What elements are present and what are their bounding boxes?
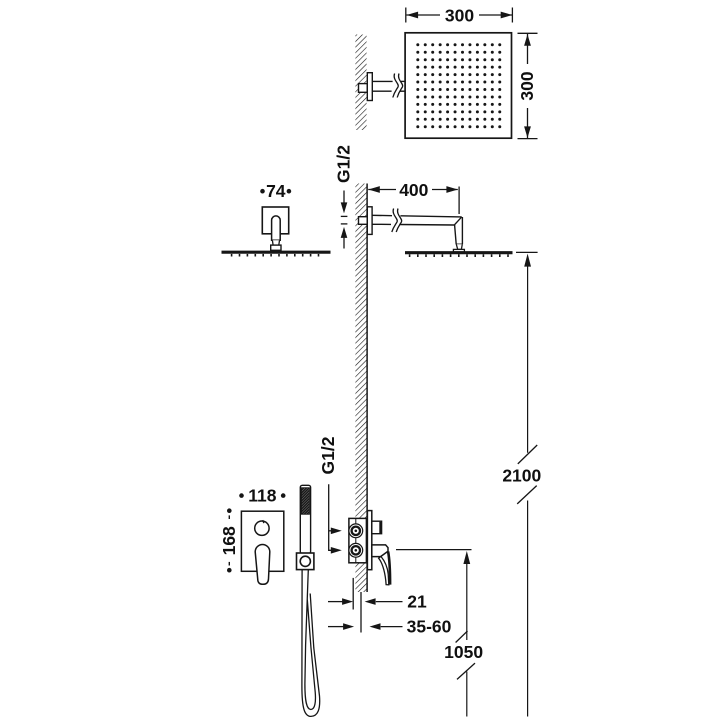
svg-text:74: 74	[266, 181, 286, 201]
svg-text:300: 300	[445, 6, 474, 26]
svg-text:G1/2: G1/2	[318, 436, 338, 474]
svg-text:300: 300	[517, 71, 537, 100]
svg-text:400: 400	[399, 180, 428, 200]
svg-text:2100: 2100	[502, 466, 541, 486]
svg-text:21: 21	[407, 592, 427, 612]
svg-text:35-60: 35-60	[407, 617, 452, 637]
svg-text:118: 118	[248, 485, 276, 505]
svg-text:168: 168	[219, 526, 239, 555]
svg-text:G1/2: G1/2	[334, 145, 354, 183]
svg-text:1050: 1050	[444, 642, 483, 662]
